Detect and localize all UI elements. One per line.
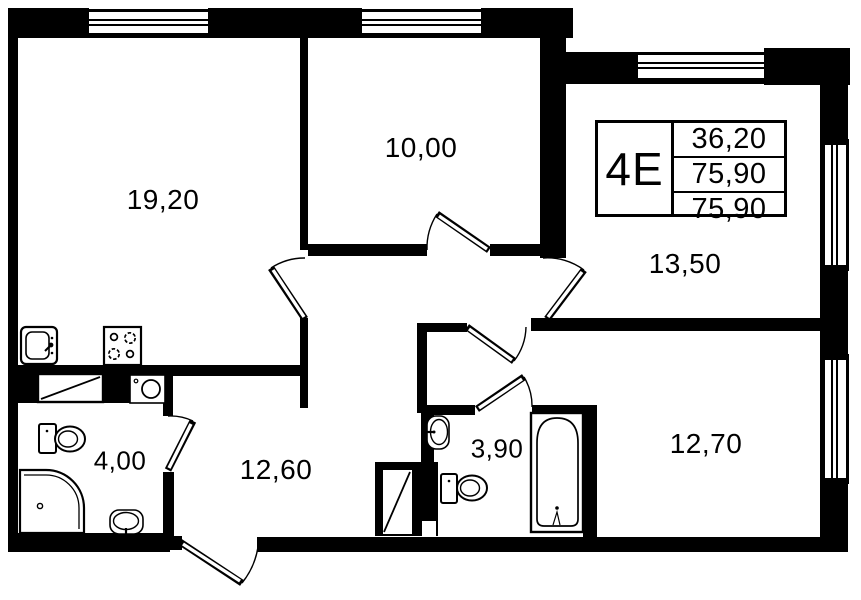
room-area-label-bath-left: 4,00 [94,446,147,477]
room-area-label-right-lower: 12,70 [670,428,743,460]
unit-area-row-total: 75,90 [674,156,784,191]
room-area-label-bath-middle: 3,90 [471,434,524,465]
window-top-1 [83,9,214,38]
window-right-1 [820,139,849,271]
unit-area-row-living: 36,20 [674,123,784,156]
floor-plan-drawing [0,0,861,600]
door-entrance [180,542,258,583]
unit-type-label: 4E [598,123,674,214]
window-top-2 [356,9,487,38]
door-room-10 [427,214,489,250]
room-area-label-right-upper: 13,50 [649,248,722,280]
door-kitchen [271,258,305,319]
room-area-label-bedroom: 10,00 [385,132,458,164]
room-area-label-living: 19,20 [127,184,200,216]
stove-icon [104,327,141,365]
door-room-12 [467,327,526,361]
washbasin-left [110,510,143,535]
door-bath-middle [477,377,532,409]
washbasin-middle [426,416,449,449]
door-room-13 [543,258,584,319]
window-top-3 [632,52,770,84]
kitchen-sink [21,327,57,364]
unit-info-box: 4E 36,20 75,90 75,90 [595,120,787,217]
bathtub [531,413,583,532]
unit-area-table: 36,20 75,90 75,90 [674,123,784,214]
washing-machine [130,375,165,403]
room-area-label-hallway: 12,60 [240,454,313,486]
toilet-left [39,424,85,453]
corner-shower [20,470,84,533]
wardrobe-closet [38,374,103,402]
door-bath-left [168,416,193,470]
toilet-middle [441,474,487,503]
floor-plan-page: 19,20 10,00 13,50 12,70 12,60 4,00 3,90 … [0,0,861,600]
window-right-2 [820,354,849,484]
unit-area-row-total-2: 75,90 [674,191,784,226]
